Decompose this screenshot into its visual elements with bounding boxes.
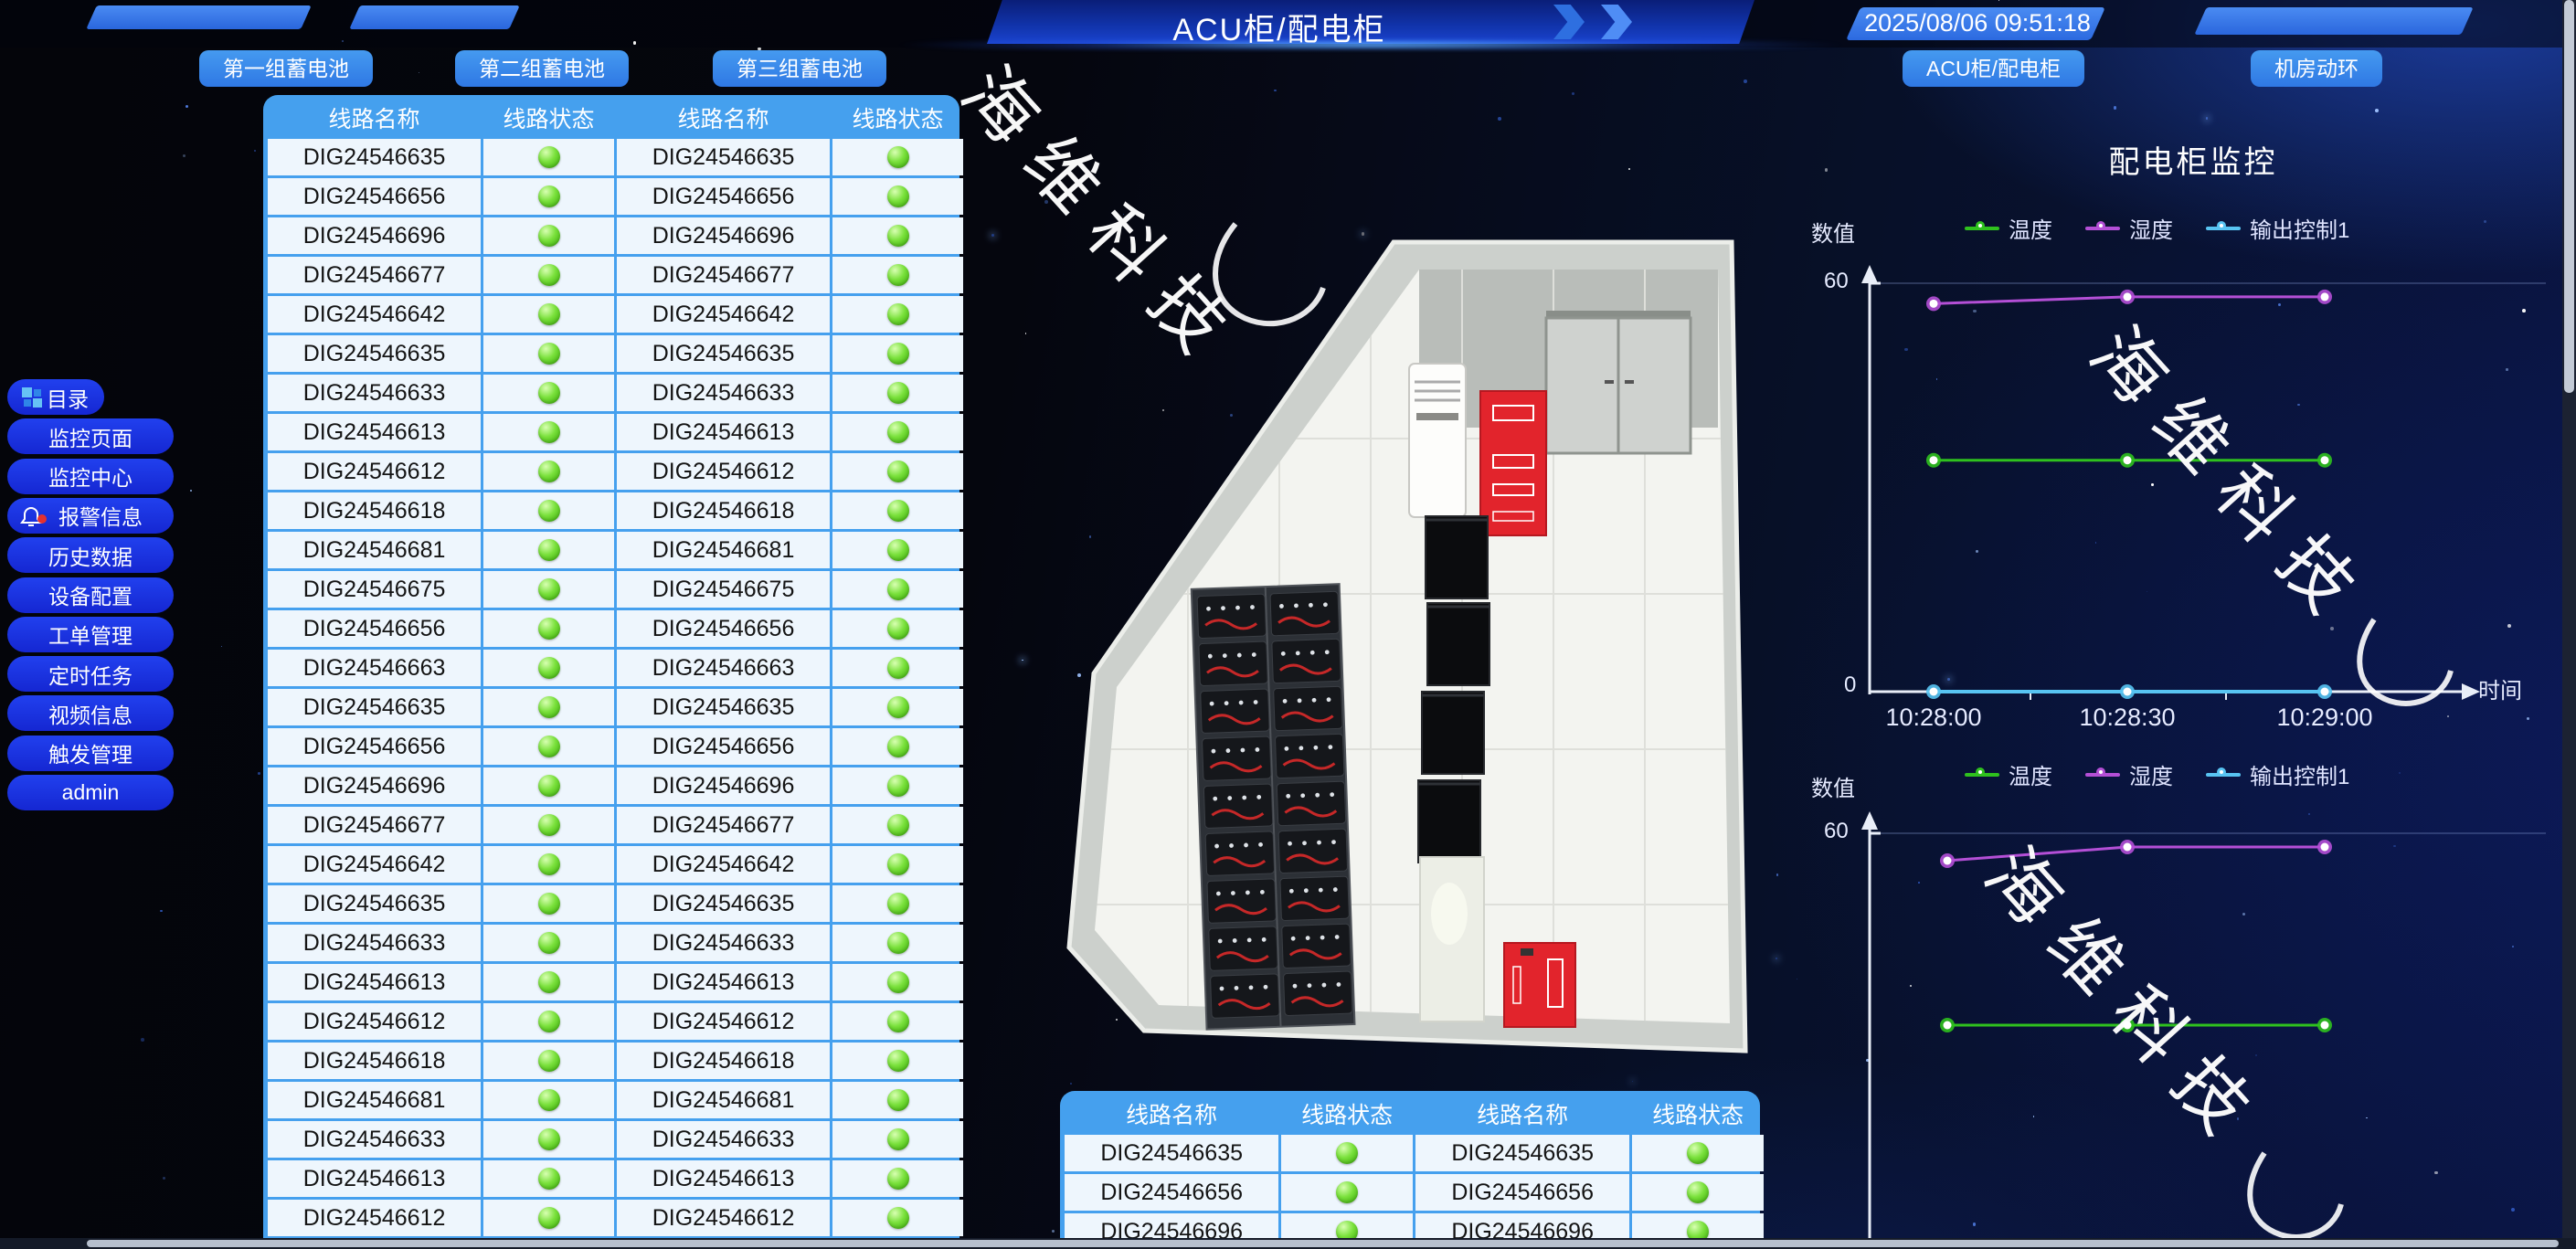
legend-label: 输出控制1 <box>2250 758 2349 790</box>
chart1-ytick-0: 0 <box>1844 672 1856 698</box>
chart1-legend: 温度湿度输出控制1 <box>1965 212 2349 244</box>
chart1-x-axis-label: 时间 <box>2478 672 2522 704</box>
chart2-legend: 温度湿度输出控制1 <box>1965 758 2349 790</box>
legend-marker <box>2206 227 2241 230</box>
legend-label: 温度 <box>2009 212 2052 244</box>
chart1-xtick: 10:28:00 <box>1860 704 2007 732</box>
legend-marker <box>2085 227 2120 230</box>
legend-marker <box>1965 773 1999 777</box>
legend-item[interactable]: 湿度 <box>2085 758 2173 790</box>
legend-label: 温度 <box>2009 758 2052 790</box>
chart2-y-axis-label: 数值 <box>1811 770 1855 802</box>
legend-marker <box>2206 773 2241 777</box>
legend-item[interactable]: 温度 <box>1965 758 2052 790</box>
chart-title: 配电柜监控 <box>2056 137 2330 182</box>
chart1-xtick: 10:28:30 <box>2054 704 2200 732</box>
horizontal-scrollbar-thumb[interactable] <box>87 1240 2559 1247</box>
legend-label: 湿度 <box>2129 758 2173 790</box>
dashboard-root: ACU柜/配电柜 2025/08/06 09:51:18 第一组蓄电池第二组蓄电… <box>0 0 2576 1249</box>
legend-item[interactable]: 湿度 <box>2085 212 2173 244</box>
chart1-ytick-60: 60 <box>1824 269 1849 294</box>
legend-item[interactable]: 输出控制1 <box>2206 758 2349 790</box>
vertical-scrollbar-thumb[interactable] <box>2564 0 2574 393</box>
watermark-swirl <box>2250 1153 2341 1237</box>
chart1-xtick: 10:29:00 <box>2252 704 2398 732</box>
legend-item[interactable]: 温度 <box>1965 212 2052 244</box>
legend-marker <box>2085 773 2120 777</box>
chart2-ytick-60: 60 <box>1824 819 1849 844</box>
legend-label: 湿度 <box>2129 212 2173 244</box>
legend-item[interactable]: 输出控制1 <box>2206 212 2349 244</box>
legend-marker <box>1965 227 1999 230</box>
chart1-y-axis-label: 数值 <box>1811 216 1855 248</box>
legend-label: 输出控制1 <box>2250 212 2349 244</box>
